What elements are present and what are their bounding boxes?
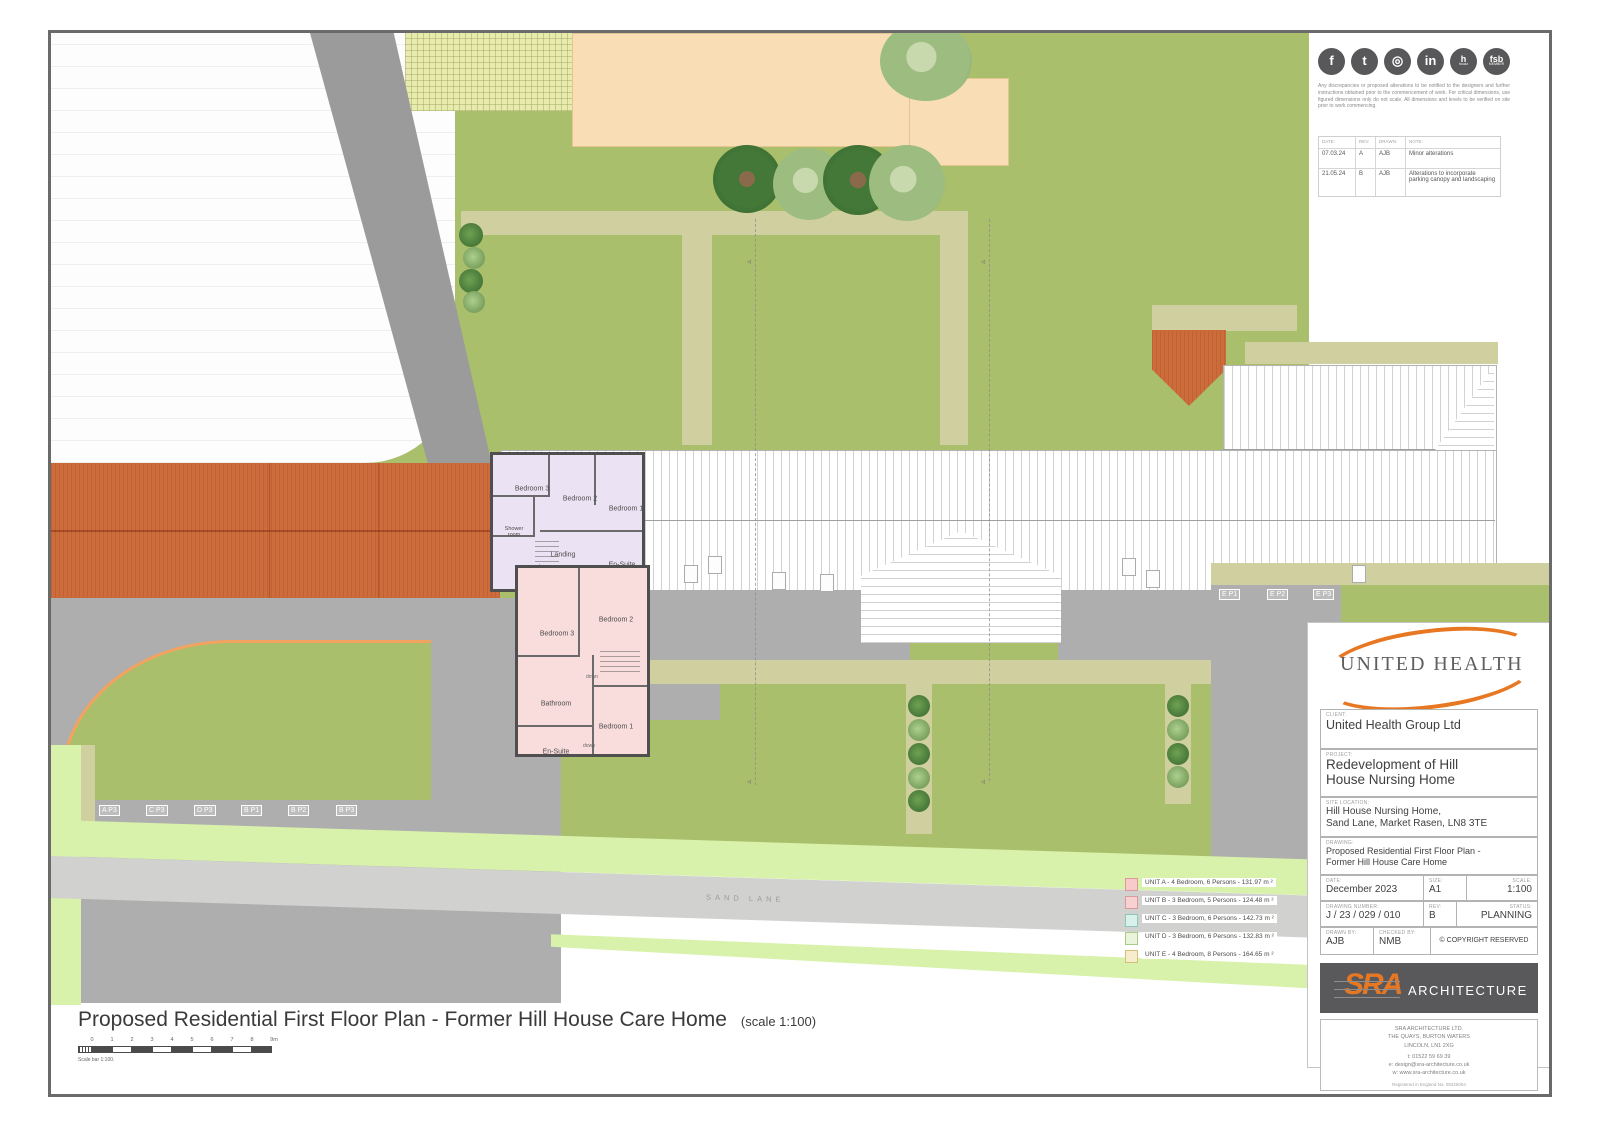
room-label-bedroom3: Bedroom 3 [540,631,574,638]
rev-row-note: Alterations to incorporate parking canop… [1406,169,1500,196]
rooflight [1146,570,1160,588]
scale-bar-segment [132,1046,152,1053]
project-value-line2: House Nursing Home [1326,773,1532,788]
stair-down-label: down [586,674,598,680]
date-cell: DATE: December 2023 [1320,875,1424,901]
title-block: UNITED HEALTH CLIENT: United Health Grou… [1307,622,1551,1068]
rooflight [820,574,834,592]
architect-address-line2: THE QUAYS, BURTON WATERS [1321,1033,1537,1041]
boundary-line [755,219,756,785]
parking-bay-label: B P1 [241,805,262,816]
rev-header-note: NOTE: [1406,137,1500,149]
logo-swoosh-bottom [1321,630,1539,721]
scale-bar-segment [172,1046,192,1053]
scale-bar-segment [252,1046,272,1053]
partition-wall [592,685,647,687]
boundary-marker: ◃ [981,777,985,786]
bush [908,743,930,765]
neighbour-building [572,33,911,147]
parking-bay-label: B P2 [288,805,309,816]
canopy-ridge [51,530,500,532]
parking-bay-label: E P1 [1219,589,1240,600]
boundary-marker: ◃ [747,257,751,266]
scale-bar-segment [232,1046,252,1053]
rooflight [1352,565,1366,583]
disclaimer-note: Any discrepancies or proposed alteration… [1318,83,1510,110]
drawing-number-cell: DRAWING NUMBER: J / 23 / 029 / 010 [1320,901,1424,927]
garden-path-vertical [682,211,712,445]
parking-bay-label: E P2 [1267,589,1288,600]
rev-row-rev: B [1356,169,1376,196]
rooflight [772,572,786,590]
project-value-line1: Redevelopment of Hill [1326,758,1532,773]
partition-wall [533,497,535,535]
status-value: PLANNING [1462,910,1532,921]
rev-row-date: 21.05.24 [1319,169,1356,196]
room-label-bedroom1: Bedroom 1 [609,506,643,513]
site-location-field: SITE LOCATION: Hill House Nursing Home, … [1320,797,1538,837]
architect-address-box: SRA ARCHITECTURE LTD. THE QUAYS, BURTON … [1320,1019,1538,1091]
copyright-cell: © COPYRIGHT RESERVED [1430,927,1538,955]
path-below-building [650,660,1211,684]
sheet-title-text: Proposed Residential First Floor Plan - … [78,1008,727,1031]
copyright-text: © COPYRIGHT RESERVED [1436,937,1532,944]
scale-bar-lead [78,1046,92,1053]
drawn-by-value: AJB [1326,936,1368,947]
sheet-title: Proposed Residential First Floor Plan - … [78,1008,816,1032]
scale-tick: 7 [230,1037,233,1043]
stair-down-label: down [583,743,595,749]
legend-swatch-unit-a [1125,878,1138,891]
canopy-divider [269,463,270,600]
bush [459,269,483,293]
scale-bar-segment [112,1046,132,1053]
fsb-sub: MEMBER [1483,62,1510,66]
partition-wall [592,655,594,754]
tree [869,145,945,221]
unit-legend: UNIT A - 4 Bedroom, 6 Persons - 131.97 m… [1125,878,1315,970]
parking-bay-label: C P3 [146,805,168,816]
facebook-icon: f [1318,48,1345,75]
status-cell: STATUS: PLANNING [1456,901,1538,927]
rev-value: B [1429,910,1451,921]
partition-wall [540,530,642,532]
sra-logo-word: ARCHITECTURE [1408,983,1528,998]
bush [459,223,483,247]
courtyard [1058,590,1213,662]
parking-bay-label: D P3 [194,805,216,816]
rev-row-rev: A [1356,149,1376,169]
architect-phone: t: 01522 59 69 39 [1321,1053,1537,1061]
room-label-bedroom2: Bedroom 2 [599,617,633,624]
site-location-line1: Hill House Nursing Home, [1326,806,1532,818]
facebook-glyph: f [1318,48,1345,74]
checked-by-cell: CHECKED BY: NMB [1373,927,1431,955]
bush [1167,766,1189,788]
room-label-landing: Landing [551,552,576,559]
scale-tick: 5 [190,1037,193,1043]
linkedin-glyph: in [1417,48,1444,74]
path-step [1245,342,1498,364]
bush [908,790,930,812]
bush [908,767,930,789]
legend-swatch-unit-c [1125,914,1138,927]
client-value: United Health Group Ltd [1326,718,1532,732]
drawn-by-cell: DRAWN BY: AJB [1320,927,1374,955]
project-field: PROJECT: Redevelopment of Hill House Nur… [1320,749,1538,797]
roof-ridge [500,520,1495,521]
drawing-number-value: J / 23 / 029 / 010 [1326,910,1418,921]
rev-header-date: DATE: [1319,137,1356,149]
twitter-icon: t [1351,48,1378,75]
partition-wall [578,568,580,655]
room-label-bedroom3: Bedroom 3 [515,486,549,493]
scale-bar-caption: Scale bar 1:100. [78,1057,114,1063]
room-label-bedroom1: Bedroom 1 [599,724,633,731]
canopy-divider [378,463,379,600]
revision-table: DATE: REV: DRAWN: NOTE: 07.03.24 A AJB M… [1318,136,1501,197]
fsb-icon: fsb MEMBER [1483,48,1510,75]
drawing-field: DRAWING: Proposed Residential First Floo… [1320,837,1538,875]
drawing-sheet: SAND LANE ◃ ◃ ◃ ◃ Bedroom 3 Bedroom 2 Be… [48,30,1552,1097]
client-field: CLIENT: United Health Group Ltd [1320,709,1538,749]
unit-lower-floor-plan: Bedroom 2 Bedroom 3 down Bathroom Bedroo… [515,565,650,757]
bush [1167,719,1189,741]
legend-swatch-unit-d [1125,932,1138,945]
date-value: December 2023 [1326,884,1418,895]
sheet-title-scale: (scale 1:100) [741,1014,816,1029]
garden-path-vertical [940,211,968,445]
architect-address-line1: SRA ARCHITECTURE LTD. [1321,1025,1537,1033]
rev-row-drawn: AJB [1376,169,1406,196]
boundary-marker: ◃ [981,257,985,266]
staircase [600,650,640,672]
sra-logo-line [1334,981,1400,982]
scale-bar-segment [212,1046,232,1053]
sra-logo-line [1334,989,1400,990]
drawing-line1: Proposed Residential First Floor Plan - [1326,846,1532,857]
linkedin-icon: in [1417,48,1444,75]
room-label-bedroom2: Bedroom 2 [563,496,597,503]
parking-bay-label: B P3 [336,805,357,816]
houzz-sub: houzz [1450,62,1477,66]
bush [908,719,930,741]
instagram-icon: ◎ [1384,48,1411,75]
site-location-line2: Sand Lane, Market Rasen, LN8 3TE [1326,818,1532,830]
partition-wall [518,725,594,727]
rev-row-date: 07.03.24 [1319,149,1356,169]
twitter-glyph: t [1351,48,1378,74]
legend-label-unit-a: UNIT A - 4 Bedroom, 6 Persons - 131.97 m… [1142,878,1276,887]
rooflight [708,556,722,574]
scale-tick: 6 [210,1037,213,1043]
rev-header-drawn: DRAWN: [1376,137,1406,149]
scale-bar: 0 1 2 3 4 5 6 7 8 9m Scale bar 1:100. [78,1037,308,1067]
boundary-marker: ◃ [747,777,751,786]
legend-label-unit-b: UNIT B - 3 Bedroom, 5 Persons - 124.48 m… [1142,896,1277,905]
bush [1167,743,1189,765]
legend-label-unit-e: UNIT E - 4 Bedroom, 8 Persons - 164.65 m… [1142,950,1277,959]
path-step [1152,305,1297,331]
rev-header-rev: REV: [1356,137,1376,149]
partition-wall [518,655,580,657]
legend-swatch-unit-b [1125,896,1138,909]
rooflight [1122,558,1136,576]
bush [1167,695,1189,717]
boundary-line [989,219,990,781]
architect-email: e: design@sra-architecture.co.uk [1321,1061,1537,1069]
scale-tick: 0 [90,1037,93,1043]
bush [463,291,485,313]
rooflight [684,565,698,583]
instagram-glyph: ◎ [1384,48,1411,74]
architectural-drawing-page: SAND LANE ◃ ◃ ◃ ◃ Bedroom 3 Bedroom 2 Be… [0,0,1600,1130]
paved-patio [405,33,593,111]
scale-value: 1:100 [1472,884,1532,895]
size-cell: SIZE: A1 [1423,875,1467,901]
architect-web: w: www.sra-architecture.co.uk [1321,1069,1537,1077]
parking-bay-label: E P3 [1313,589,1334,600]
room-label-bathroom: Bathroom [541,701,571,708]
scale-tick: 3 [150,1037,153,1043]
scale-tick: 4 [170,1037,173,1043]
houzz-icon: h houzz [1450,48,1477,75]
scale-cell: SCALE: 1:100 [1466,875,1538,901]
drawing-line2: Former Hill House Care Home [1326,857,1532,868]
road-name-label: SAND LANE [706,893,785,904]
size-value: A1 [1429,884,1461,895]
sra-logo-box: SRA ARCHITECTURE [1320,963,1538,1013]
architect-registration: Registered in England No. 05325004 [1321,1082,1537,1089]
rev-row-drawn: AJB [1376,149,1406,169]
bush [463,247,485,269]
tree [713,145,781,213]
scale-bar-segment [152,1046,172,1053]
united-health-logo: UNITED HEALTH [1340,653,1524,676]
legend-label-unit-d: UNIT D - 3 Bedroom, 6 Persons - 132.83 m… [1142,932,1277,941]
scale-tick: 9m [270,1037,278,1043]
partition-wall [493,495,550,497]
rev-row-note: Minor alterations [1406,149,1500,169]
scale-bar-segment [192,1046,212,1053]
scale-bar-segment [92,1046,112,1053]
scale-tick: 1 [110,1037,113,1043]
legend-swatch-unit-e [1125,950,1138,963]
scale-tick: 8 [250,1037,253,1043]
legend-label-unit-c: UNIT C - 3 Bedroom, 6 Persons - 142.73 m… [1142,914,1277,923]
bush [908,695,930,717]
room-label-ensuite: En-Suite [543,749,570,756]
scale-tick: 2 [130,1037,133,1043]
sra-logo-line [1334,997,1400,998]
architect-address-line3: LINCOLN, LN1 2XG [1321,1042,1537,1050]
checked-by-value: NMB [1379,936,1425,947]
parking-bay-label: A P3 [99,805,120,816]
path-east [1211,563,1549,585]
rev-cell: REV: B [1423,901,1457,927]
room-label-shower2: room [508,532,521,538]
